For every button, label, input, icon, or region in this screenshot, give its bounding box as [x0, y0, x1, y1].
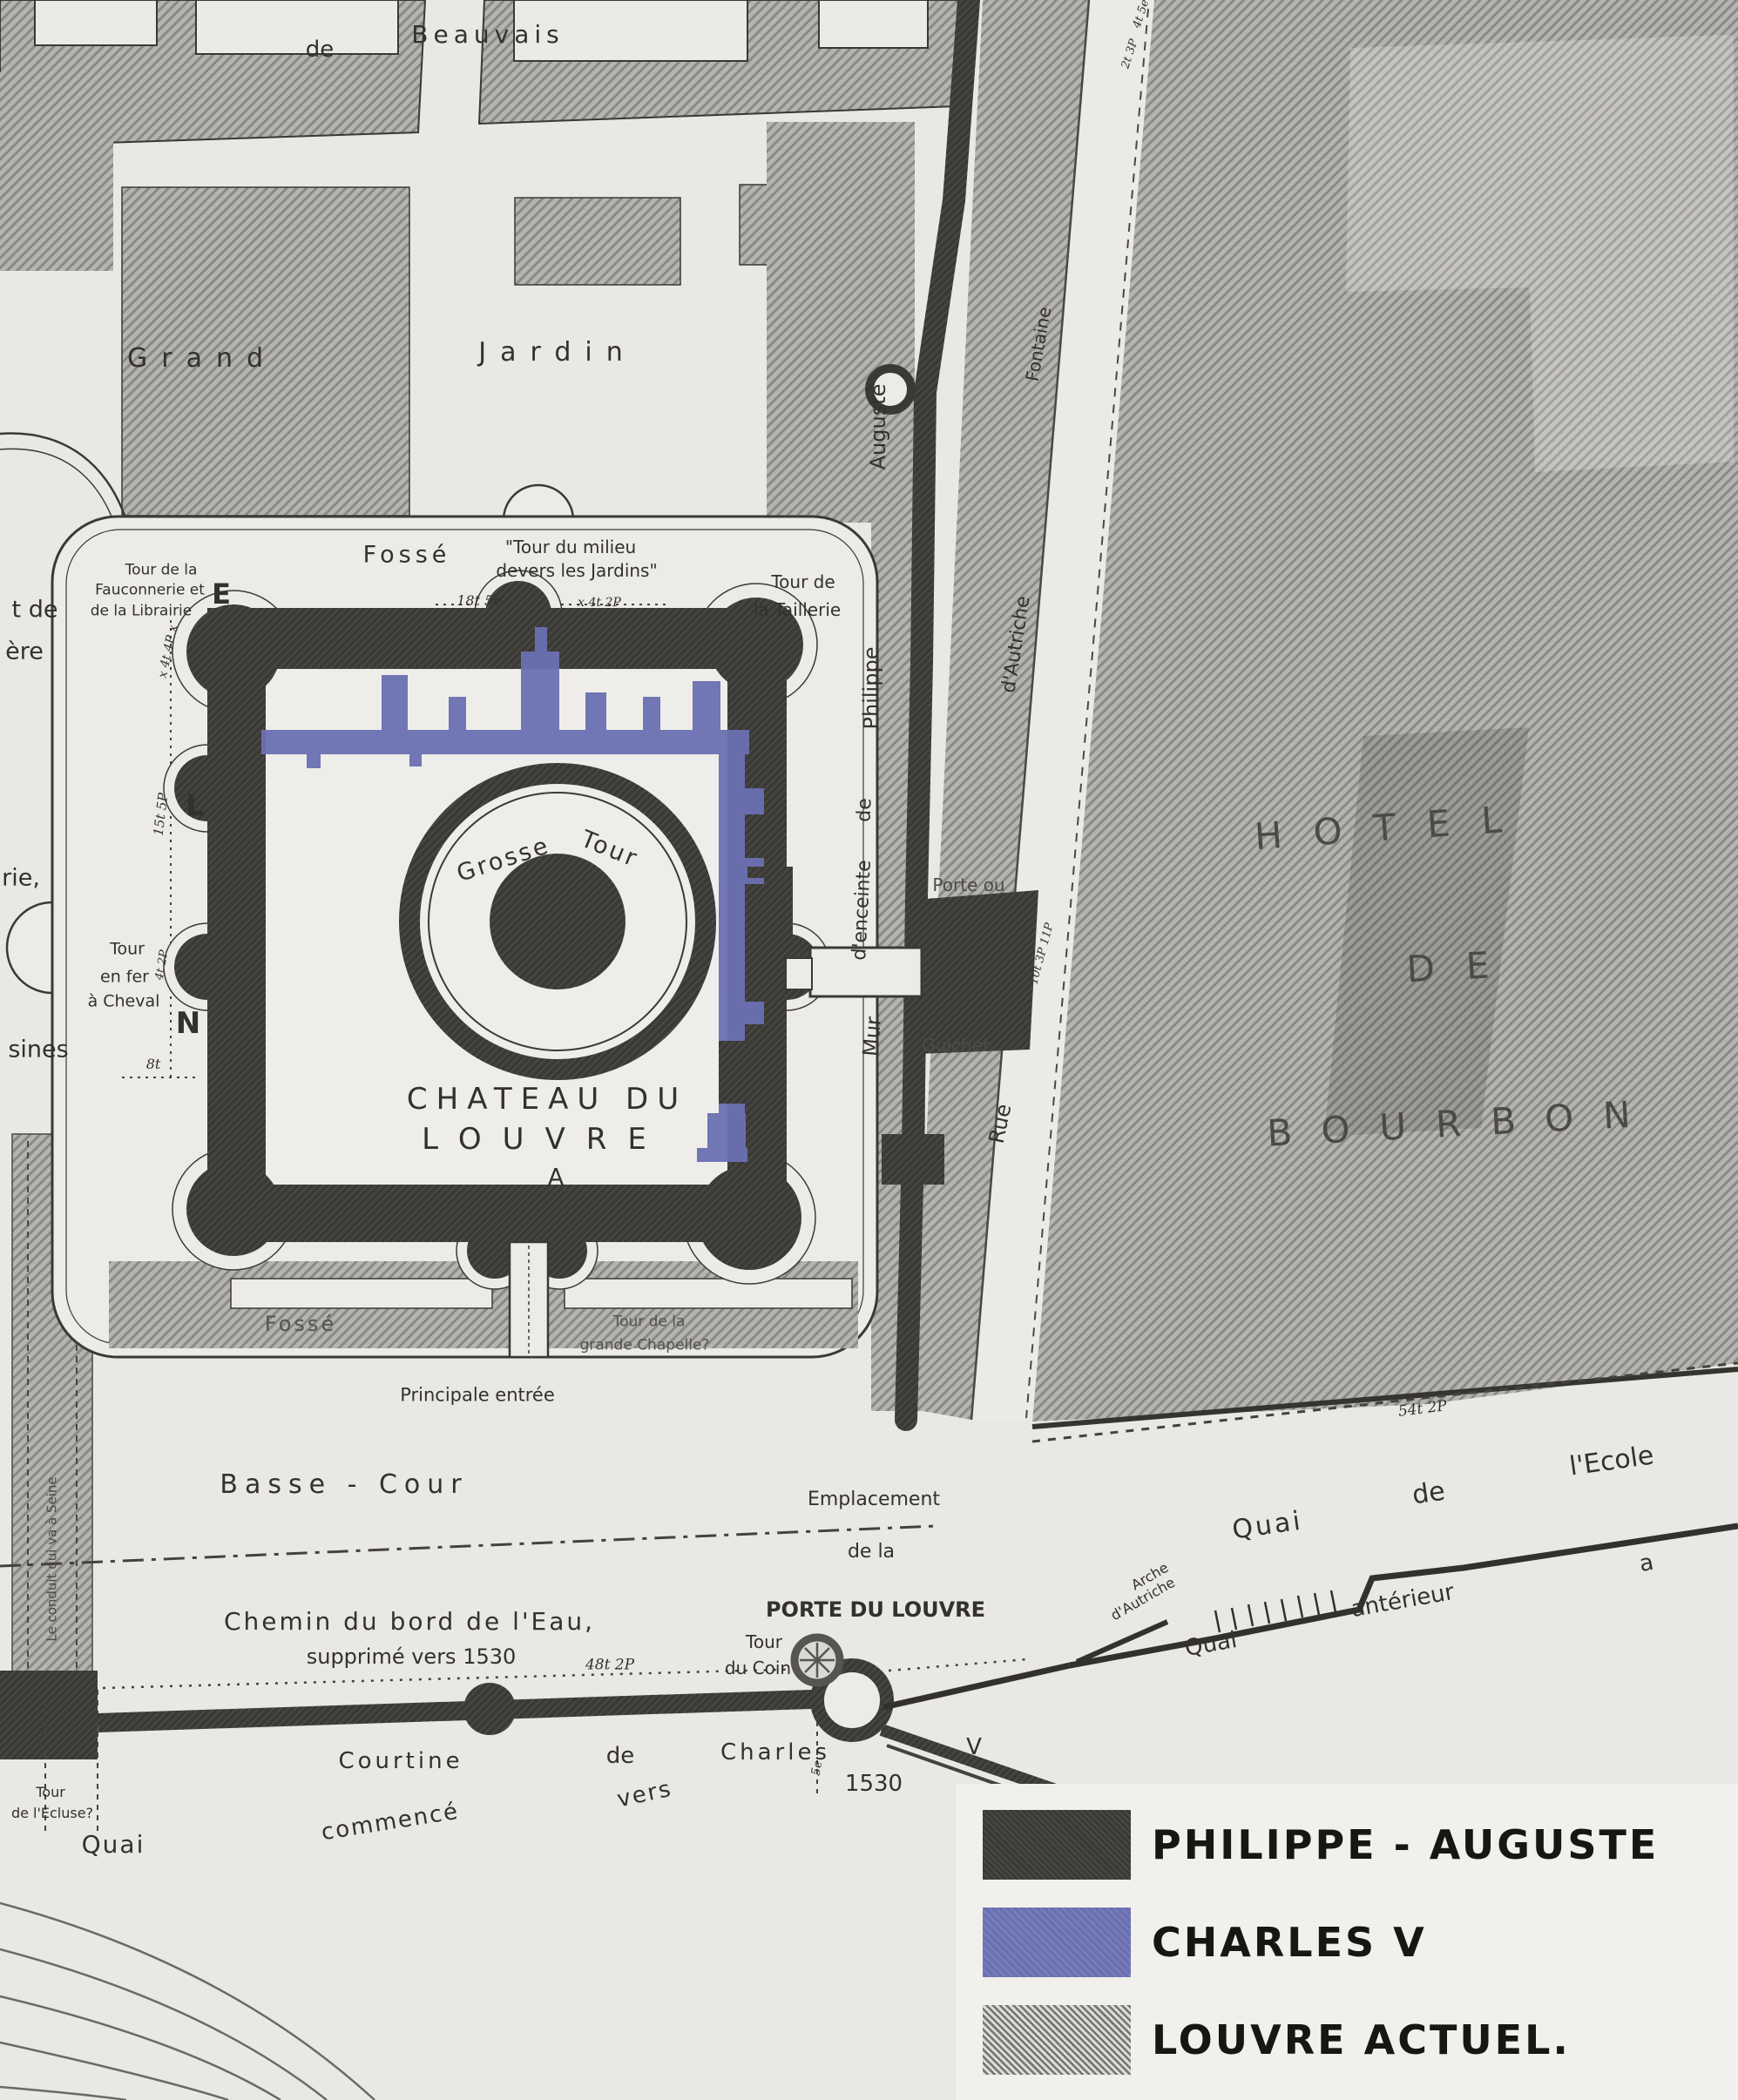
legend-row-charles-v: CHARLES V: [983, 1903, 1738, 1982]
legend-swatch-philippe-auguste: [983, 1810, 1131, 1880]
gate-passage: [810, 948, 922, 996]
louvre-historical-map: deBeauvaisGrandJardinFossé"Tour du milie…: [0, 0, 1738, 2100]
legend-label-philippe-auguste: PHILIPPE - AUGUSTE: [1152, 1821, 1659, 1868]
legend-row-philippe-auguste: PHILIPPE - AUGUSTE: [983, 1806, 1738, 1884]
legend: PHILIPPE - AUGUSTE CHARLES V LOUVRE ACTU…: [957, 1784, 1738, 2100]
legend-label-louvre-actuel: LOUVRE ACTUEL.: [1152, 2016, 1571, 2063]
porte-block: [916, 890, 1038, 1054]
tour-ecluse-block: [0, 1671, 98, 1759]
legend-swatch-louvre-actuel: [983, 2005, 1131, 2075]
rosette-tower: [795, 1637, 840, 1683]
legend-swatch-charles-v: [983, 1908, 1131, 1977]
legend-row-louvre-actuel: LOUVRE ACTUEL.: [983, 2001, 1738, 2079]
wall-tower: [869, 368, 911, 410]
principal-entrance: [510, 1242, 548, 1357]
legend-label-charles-v: CHARLES V: [1152, 1919, 1427, 1966]
